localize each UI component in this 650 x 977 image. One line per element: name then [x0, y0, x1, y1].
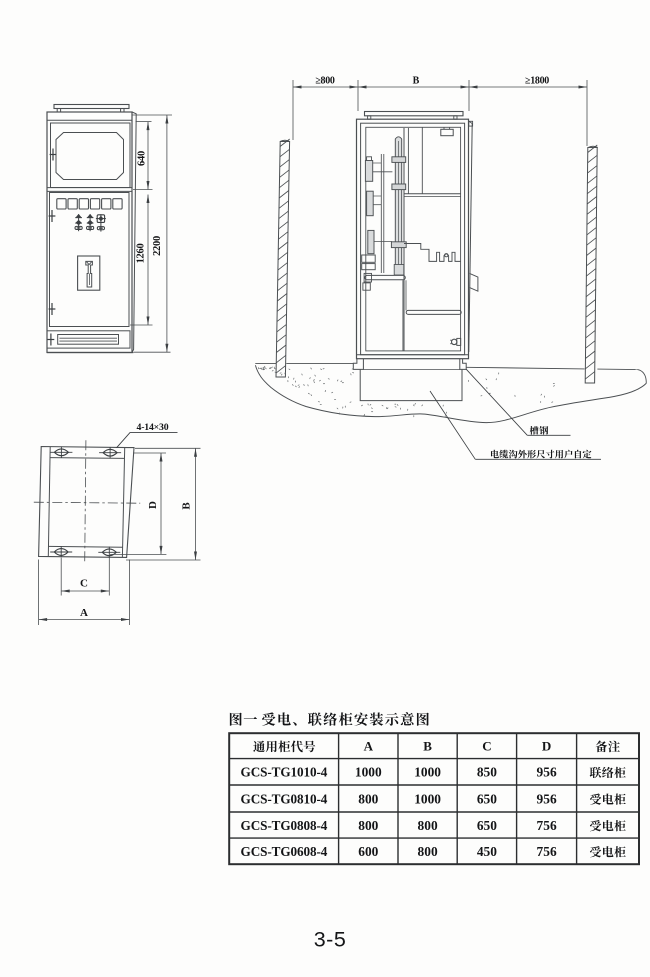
svg-text:640: 640 [137, 151, 148, 166]
svg-text:450: 450 [477, 844, 497, 859]
svg-text:≥800: ≥800 [315, 76, 335, 87]
svg-text:2200: 2200 [152, 236, 163, 256]
svg-text:A: A [80, 607, 88, 619]
svg-text:956: 956 [537, 791, 557, 806]
svg-text:B: B [423, 739, 432, 754]
svg-text:756: 756 [537, 818, 557, 833]
svg-text:B: B [413, 76, 420, 87]
svg-text:B: B [181, 502, 193, 510]
svg-text:D: D [147, 501, 159, 509]
svg-text:1000: 1000 [414, 765, 441, 780]
svg-text:C: C [482, 739, 491, 754]
svg-text:4-14×30: 4-14×30 [137, 422, 169, 433]
svg-text:GCS-TG0810-4: GCS-TG0810-4 [241, 791, 328, 806]
svg-text:800: 800 [358, 791, 378, 806]
svg-text:650: 650 [477, 818, 497, 833]
svg-text:GCS-TG0808-4: GCS-TG0808-4 [241, 818, 328, 833]
svg-text:1260: 1260 [136, 244, 147, 264]
svg-text:1000: 1000 [414, 791, 441, 806]
svg-text:C: C [80, 578, 88, 590]
svg-text:956: 956 [537, 765, 557, 780]
svg-text:800: 800 [418, 844, 438, 859]
svg-text:650: 650 [477, 791, 497, 806]
svg-text:800: 800 [358, 818, 378, 833]
svg-text:3-5: 3-5 [314, 928, 347, 952]
svg-text:GCS-TG1010-4: GCS-TG1010-4 [241, 765, 328, 780]
svg-text:756: 756 [537, 844, 557, 859]
svg-text:A: A [364, 739, 374, 754]
svg-text:600: 600 [358, 844, 378, 859]
svg-text:≥1800: ≥1800 [525, 76, 549, 87]
svg-text:850: 850 [477, 765, 497, 780]
svg-text:D: D [542, 739, 551, 754]
svg-text:1000: 1000 [355, 765, 382, 780]
svg-text:800: 800 [418, 818, 438, 833]
svg-text:GCS-TG0608-4: GCS-TG0608-4 [241, 844, 328, 859]
